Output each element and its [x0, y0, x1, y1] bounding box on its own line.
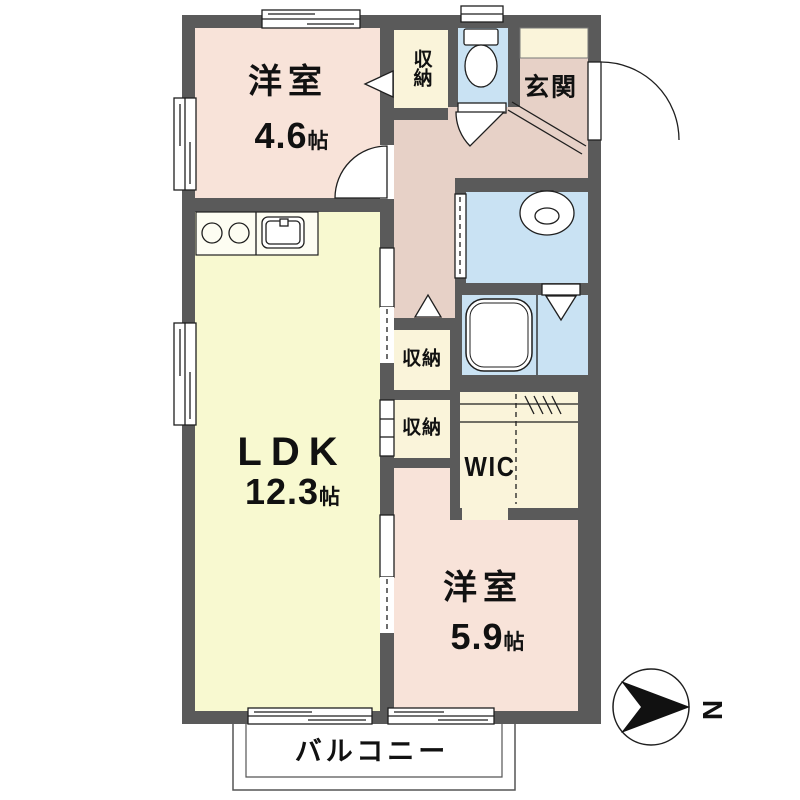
bathtub-icon: [466, 295, 537, 375]
ldk-size: 12.3帖: [245, 474, 341, 510]
storage-mid-door-icon: [415, 295, 441, 317]
bedroom-a-door-icon: [335, 145, 394, 199]
size-value: 4.6: [254, 115, 307, 156]
shoe-cabinet-outline: [520, 28, 588, 58]
bedroom-a-size: 4.6帖: [254, 118, 329, 154]
bedroom-a-label: 洋室: [248, 65, 328, 99]
size-value: 5.9: [450, 616, 503, 657]
size-unit: 帖: [308, 130, 330, 153]
storage-mid-upper-label: 収納: [402, 350, 442, 369]
storage-top-label: 収納: [412, 49, 431, 87]
north-label: N: [698, 700, 726, 722]
window-icon-bottom-bedroom-b: [388, 708, 494, 724]
size-unit: 帖: [319, 486, 341, 509]
window-icon-top-bedroom-a: [262, 10, 360, 28]
window-icon-toilet: [461, 6, 503, 22]
storage-mid-lower-label: 収納: [402, 419, 442, 438]
toilet-icon: [464, 29, 498, 87]
storage-top-door-icon: [365, 71, 393, 97]
entrance-label: 玄関: [524, 76, 578, 101]
compass-icon: [613, 669, 690, 745]
bedroom-b-size: 5.9帖: [450, 619, 525, 655]
toilet-door-icon: [456, 103, 506, 146]
wic-label: WIC: [464, 453, 515, 481]
window-icon-bottom-ldk: [248, 708, 372, 724]
entrance-door-icon: [588, 62, 679, 140]
bathroom-door-icon: [542, 284, 580, 320]
balcony-label: バルコニー: [295, 739, 449, 766]
entrance-step-lines: [508, 102, 586, 154]
size-unit: 帖: [504, 631, 526, 654]
floor-plan: 洋室 4.6帖 収納 玄関 LDK 12.3帖 収納 収納 WIC 洋室 5.9…: [0, 0, 800, 800]
size-value: 12.3: [245, 471, 319, 512]
washroom-sliding-door-icon: [455, 194, 466, 278]
ldk-label: LDK: [237, 432, 346, 472]
kitchen-counter-icon: [196, 212, 318, 255]
storage-door-icon: [380, 400, 394, 456]
window-icon-left-ldk: [174, 323, 196, 425]
window-icon-left-bedroom-a: [174, 98, 196, 190]
bedroom-b-label: 洋室: [443, 571, 523, 605]
wic-shelf-icon: [460, 394, 578, 504]
sliding-door-ldk-hall-icon: [380, 248, 394, 363]
fixtures-layer: [0, 0, 800, 800]
washbasin-icon: [520, 191, 574, 235]
sliding-door-ldk-bedroom-icon: [380, 515, 394, 633]
